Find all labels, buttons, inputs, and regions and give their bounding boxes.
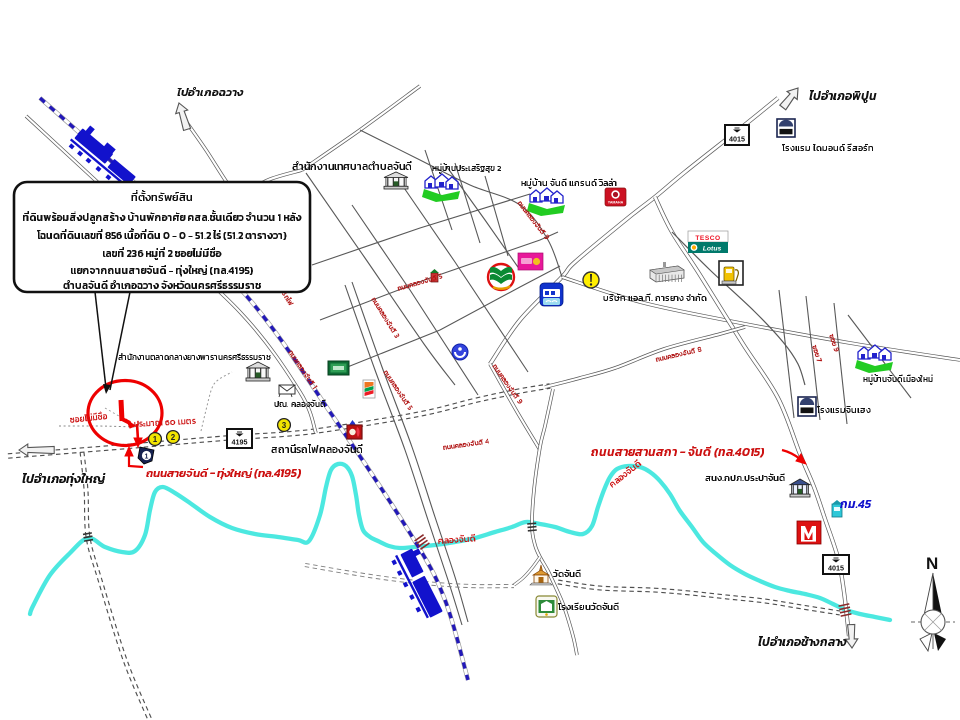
svg-text:3: 3	[282, 421, 287, 430]
svg-text:N: N	[926, 554, 938, 573]
svg-text:YAMAHA: YAMAHA	[608, 201, 624, 205]
svg-text:2: 2	[171, 433, 176, 442]
svg-text:1: 1	[145, 453, 149, 460]
svg-text:4015: 4015	[729, 135, 745, 144]
svg-text:TESCO: TESCO	[695, 235, 720, 242]
svg-text:1: 1	[153, 435, 158, 444]
svg-text:4195: 4195	[232, 438, 248, 447]
svg-text:4015: 4015	[828, 564, 844, 573]
svg-text:Lotus: Lotus	[703, 246, 722, 253]
